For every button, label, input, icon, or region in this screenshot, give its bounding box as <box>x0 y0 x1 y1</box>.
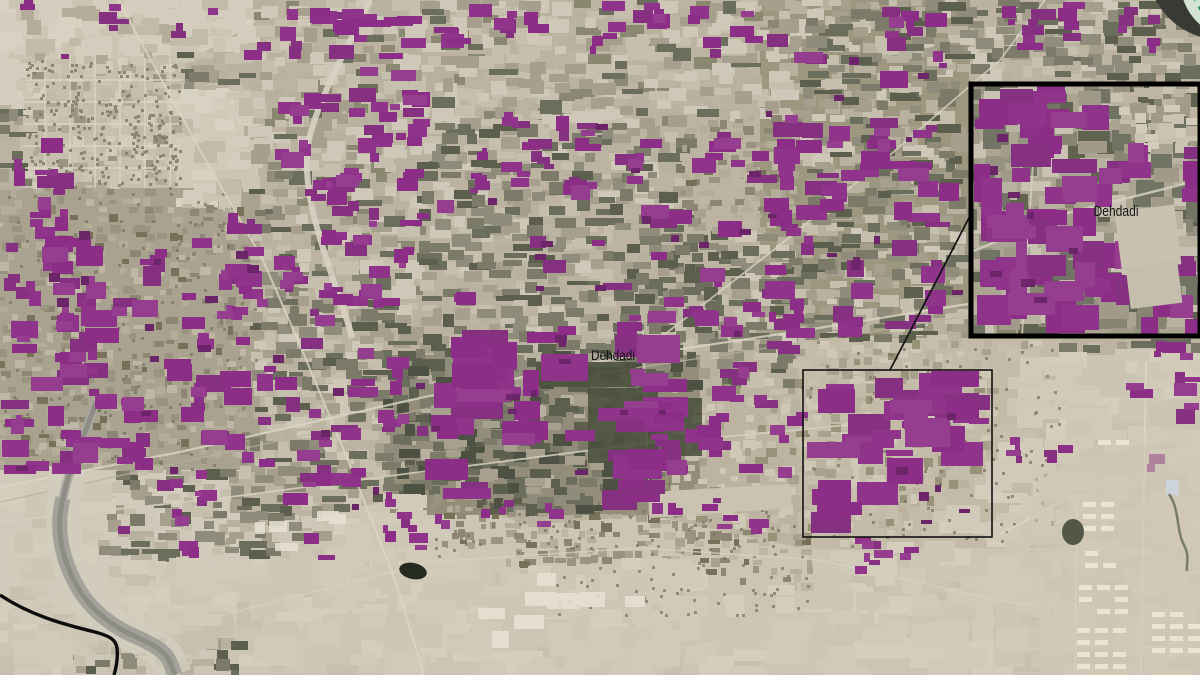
svg-text:Dehdadi: Dehdadi <box>591 347 635 363</box>
svg-text:Dehdadi: Dehdadi <box>1094 204 1139 220</box>
